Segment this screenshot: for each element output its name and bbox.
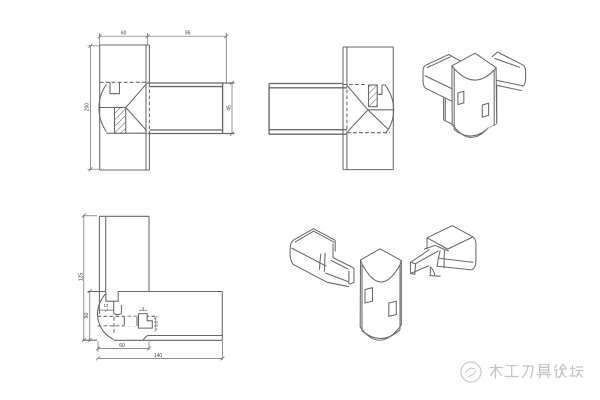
svg-text:45: 45 [227, 105, 233, 111]
svg-text:4: 4 [142, 306, 145, 311]
svg-text:60: 60 [119, 343, 125, 349]
svg-text:12: 12 [104, 303, 109, 308]
svg-text:200: 200 [85, 103, 91, 112]
svg-text:50: 50 [84, 313, 90, 319]
svg-text:140: 140 [154, 353, 163, 359]
svg-text:60: 60 [121, 31, 127, 37]
svg-text:125: 125 [78, 273, 84, 282]
svg-text:95: 95 [185, 31, 191, 37]
svg-text:3.5: 3.5 [154, 320, 159, 326]
